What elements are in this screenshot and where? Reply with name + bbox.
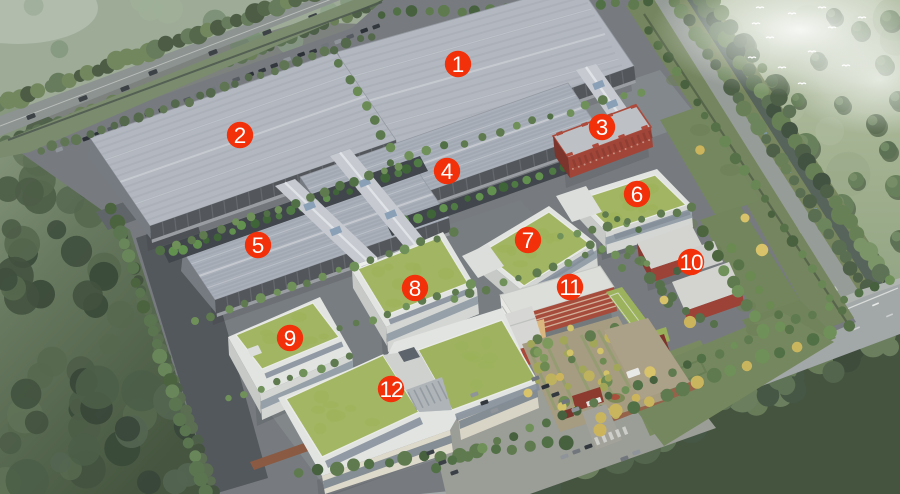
svg-text:12: 12 bbox=[379, 377, 403, 402]
svg-text:3: 3 bbox=[596, 115, 609, 140]
svg-text:9: 9 bbox=[284, 326, 297, 351]
svg-text:10: 10 bbox=[679, 250, 703, 275]
svg-text:4: 4 bbox=[441, 159, 454, 184]
svg-text:8: 8 bbox=[409, 276, 422, 301]
svg-text:7: 7 bbox=[522, 228, 535, 253]
svg-text:1: 1 bbox=[452, 52, 465, 77]
svg-text:5: 5 bbox=[252, 233, 265, 258]
svg-text:2: 2 bbox=[234, 123, 247, 148]
svg-text:6: 6 bbox=[631, 182, 644, 207]
svg-text:11: 11 bbox=[559, 275, 581, 300]
